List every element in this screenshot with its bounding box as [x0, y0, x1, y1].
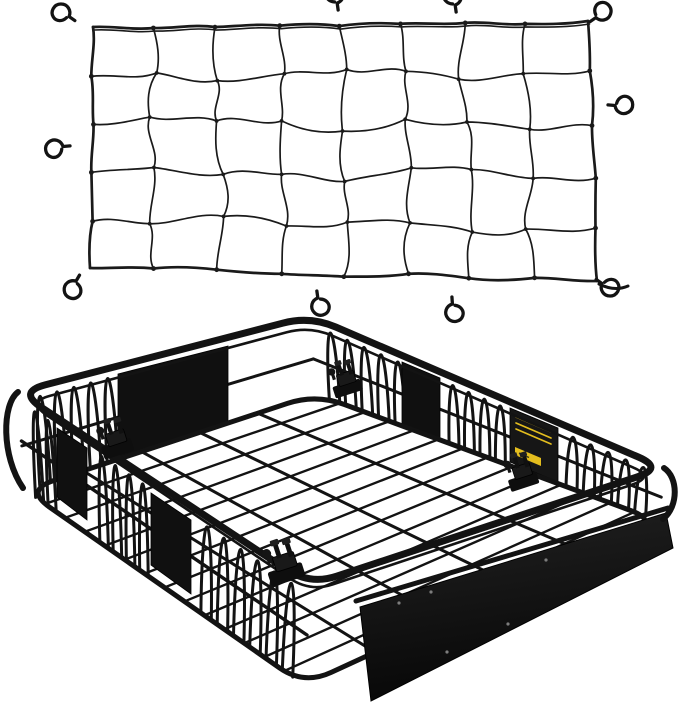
wall-slat [480, 399, 490, 458]
net-knot [152, 166, 156, 170]
bungee-hook [325, 0, 346, 11]
net-knot [343, 180, 347, 184]
net-knot [406, 271, 411, 276]
net-strand [148, 28, 158, 269]
net-knot [222, 215, 226, 219]
wall-slat [464, 392, 474, 452]
net-knot [398, 22, 403, 27]
net-knot [593, 226, 598, 231]
net-knot [277, 23, 282, 28]
net-knot [214, 267, 219, 272]
cargo-net [45, 0, 634, 322]
net-knot [465, 120, 469, 124]
fairing-rivet [506, 622, 509, 625]
net-strand [339, 26, 349, 277]
net-knot [151, 266, 156, 271]
net-knots [89, 21, 598, 281]
net-strand [401, 24, 412, 274]
bungee-hook [607, 95, 633, 114]
product-photo [0, 0, 679, 709]
fairing-rivet [544, 558, 547, 561]
net-knot [280, 173, 284, 177]
net-knot [470, 230, 474, 234]
net-corner-strap [599, 284, 628, 288]
wall-slat [201, 527, 212, 620]
net-knot [337, 24, 342, 29]
roof-rack-basket [6, 320, 675, 701]
net-knot [91, 122, 96, 127]
net-knot [215, 119, 219, 123]
net-knot [531, 177, 535, 181]
net-knot [215, 79, 219, 83]
net-strand [458, 23, 472, 278]
wall-slat [126, 475, 135, 567]
net-knot [593, 176, 598, 181]
net-knot [89, 74, 94, 79]
net-knot [345, 68, 349, 72]
net-knot [213, 25, 218, 30]
net-strand [213, 27, 228, 270]
product-photo-stage [0, 0, 679, 709]
net-knot [90, 219, 95, 224]
net-knot [469, 168, 473, 172]
fairing-rivet [429, 590, 432, 593]
net-strand [91, 69, 590, 82]
net-mesh [89, 21, 597, 281]
wind-fairing-plate [360, 513, 673, 701]
net-knot [341, 274, 346, 279]
net-knot [463, 21, 468, 26]
wall-slat [234, 549, 245, 643]
net-knot [279, 271, 284, 276]
bungee-hook [445, 296, 464, 322]
net-knot [148, 115, 152, 119]
bungee-hook [61, 271, 88, 301]
net-knot [345, 220, 349, 224]
net-strand [279, 26, 288, 274]
rack-near-side-wall [22, 412, 308, 677]
net-knot [532, 275, 537, 280]
net-knot [285, 224, 289, 228]
fairing-rivet [397, 601, 400, 604]
net-hooks [45, 0, 634, 322]
wall-slat [99, 456, 108, 548]
net-strand [89, 27, 93, 268]
net-strand [93, 215, 596, 235]
net-strand [522, 24, 534, 278]
net-knot [151, 26, 156, 31]
net-knot [280, 119, 284, 123]
net-knot [528, 127, 532, 131]
bungee-hook [310, 290, 331, 317]
net-knot [341, 129, 345, 133]
net-strand [588, 21, 597, 281]
rack-wind-fairing-panel [356, 508, 673, 701]
bungee-hook [45, 139, 71, 158]
net-knot [148, 222, 152, 226]
net-knot [590, 123, 595, 128]
net-knot [409, 166, 413, 170]
net-knot [523, 22, 528, 27]
net-knot [466, 276, 471, 281]
net-knot [155, 71, 159, 75]
net-knot [89, 170, 94, 175]
net-knot [403, 117, 407, 121]
net-knot [524, 227, 528, 231]
net-knot [521, 72, 525, 76]
bungee-hook [49, 0, 79, 28]
wall-slat [495, 406, 505, 464]
net-knot [283, 72, 287, 76]
net-knot [408, 221, 412, 225]
net-knot [587, 68, 592, 73]
net-knot [457, 77, 461, 81]
net-knot [221, 173, 225, 177]
net-knot [404, 69, 408, 73]
bungee-hook [443, 0, 464, 13]
fairing-rivet [445, 650, 448, 653]
